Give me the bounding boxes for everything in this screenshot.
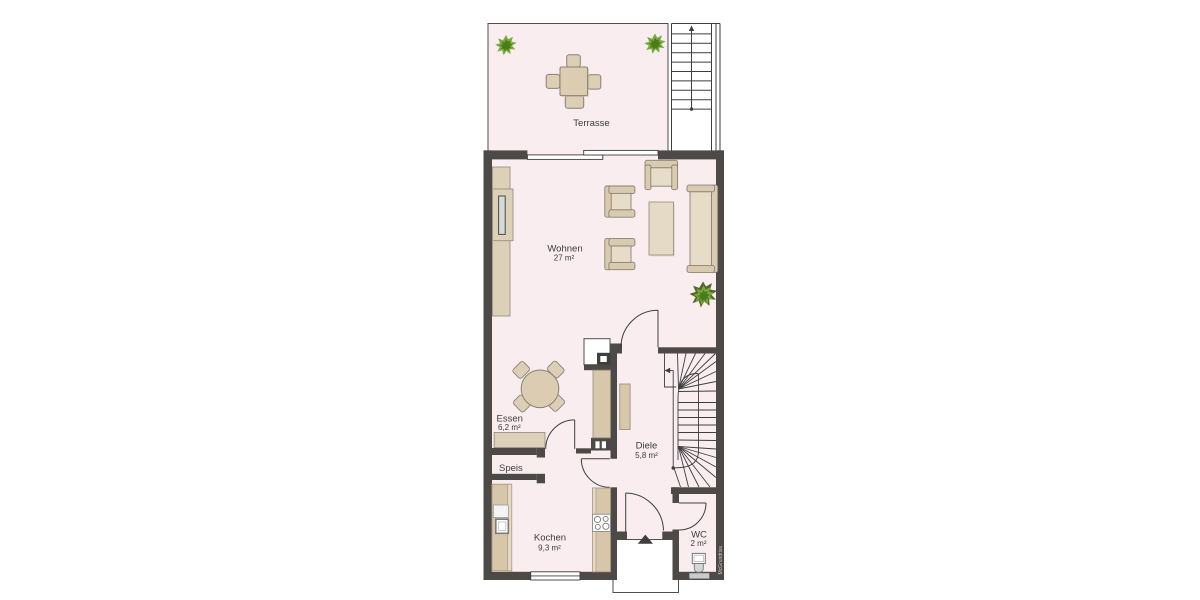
svg-text:Kochen: Kochen xyxy=(534,533,566,544)
svg-text:Speis: Speis xyxy=(499,463,523,474)
svg-text:27 m²: 27 m² xyxy=(554,254,575,263)
svg-text:2 m²: 2 m² xyxy=(691,539,707,548)
svg-text:McGrundriss: McGrundriss xyxy=(718,546,724,575)
svg-text:Diele: Diele xyxy=(636,441,658,452)
svg-text:5,8 m²: 5,8 m² xyxy=(635,451,658,460)
svg-text:9,3 m²: 9,3 m² xyxy=(538,544,561,553)
svg-text:Terrasse: Terrasse xyxy=(573,118,609,129)
svg-text:6,2 m²: 6,2 m² xyxy=(498,423,521,432)
